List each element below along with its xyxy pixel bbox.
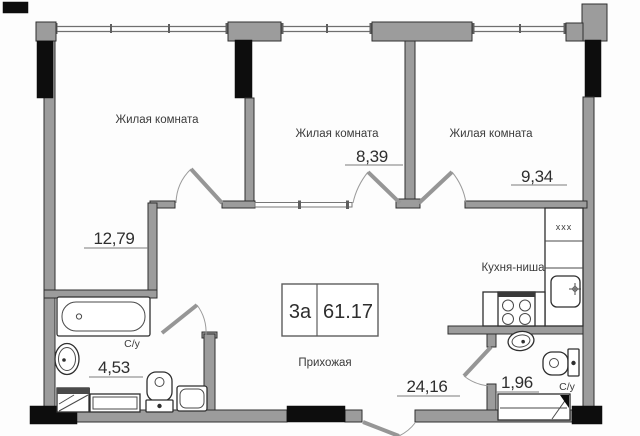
door-room3 — [419, 172, 466, 203]
info-box-unit: 3а — [289, 301, 312, 323]
room3-label: Жилая комната — [449, 128, 533, 140]
entrance-door — [363, 422, 415, 436]
door-room2 — [353, 172, 400, 203]
window-band — [55, 23, 566, 34]
washing-machine-symbol — [177, 386, 207, 411]
wc-label: С/у — [559, 381, 576, 393]
hallway-label: Прихожая — [298, 357, 351, 369]
wc-shower-tray-symbol — [498, 394, 570, 420]
vent-symbol: xxx — [556, 222, 573, 232]
bathroom-area: 4,53 — [98, 358, 130, 377]
floor-plan-page: Жилая комната 12,79 Жилая комната 8,39 Ж… — [0, 0, 640, 436]
bathroom-sink-symbol — [55, 344, 79, 375]
toilet-symbol — [146, 372, 173, 412]
door-wc — [464, 347, 491, 386]
bathroom-label: С/у — [124, 338, 141, 350]
hallway-area: 24,16 — [406, 377, 447, 396]
floor-plan-svg: Жилая комната 12,79 Жилая комната 8,39 Ж… — [0, 0, 640, 436]
room1-label: Жилая комната — [115, 114, 199, 126]
wc-area: 1,96 — [501, 373, 533, 392]
room2-area: 8,39 — [356, 147, 388, 166]
bathtub-symbol — [57, 297, 150, 336]
wc-toilet-symbol — [543, 349, 579, 376]
room3-area: 9,34 — [521, 167, 553, 186]
stove-symbol — [498, 292, 535, 326]
door-bathroom — [162, 305, 206, 335]
kitchen-sink-symbol — [551, 276, 581, 307]
bathroom-cabinet-symbol — [57, 388, 140, 412]
neighbour-wall-stub — [3, 2, 28, 13]
room1-area: 12,79 — [93, 229, 134, 248]
room2-label: Жилая комната — [295, 128, 379, 140]
info-box: 3а 61.17 — [282, 284, 378, 336]
kitchen-label: Кухня-ниша — [481, 262, 545, 274]
door-room1 — [176, 169, 222, 203]
info-box-total-area: 61.17 — [323, 301, 373, 323]
